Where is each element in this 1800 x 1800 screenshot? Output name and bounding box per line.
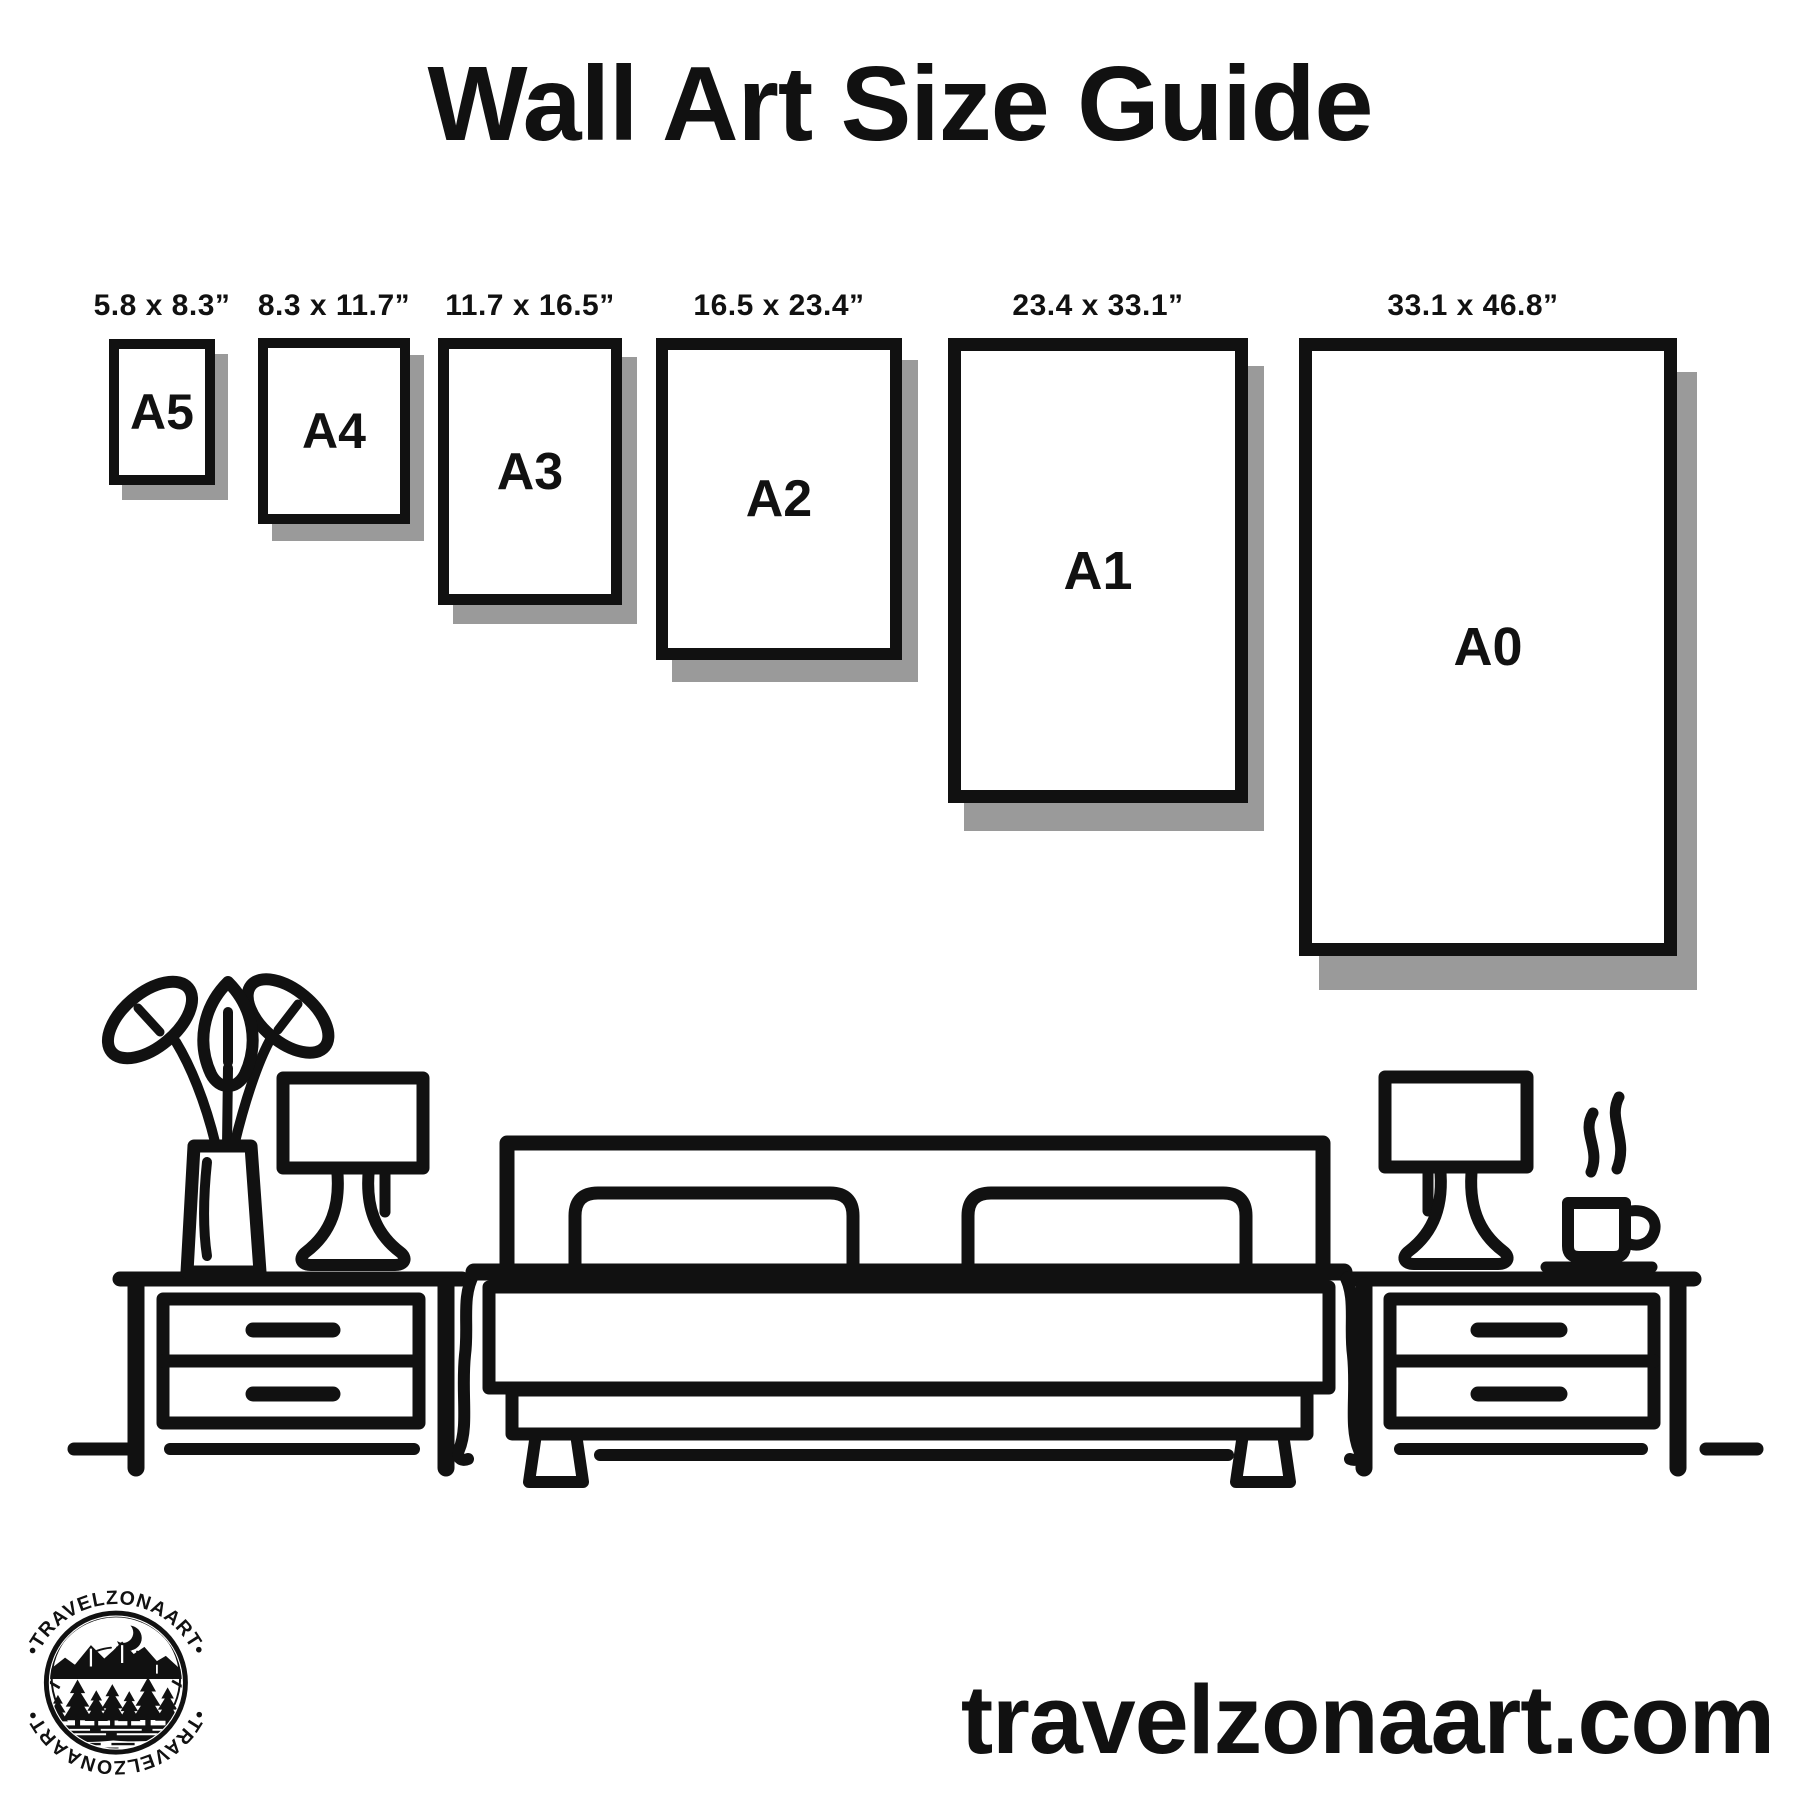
mountains-icon: [44, 1642, 187, 1688]
paper-a1: A1: [948, 338, 1248, 803]
wall-art-size-guide-page: Wall Art Size Guide 5.8 x 8.3” 8.3 x 11.…: [0, 0, 1800, 1800]
pine-trees-icon: [48, 1677, 180, 1727]
coffee-mug-steam-icon: [1546, 1097, 1655, 1267]
paper-name-a1: A1: [1063, 544, 1132, 598]
size-label-a0: 33.1 x 46.8”: [1263, 288, 1683, 324]
size-label-a1: 23.4 x 33.1”: [888, 288, 1308, 324]
paper-name-a3: A3: [497, 446, 563, 498]
brand-logo: •TRAVELZONAART• •TRAVELZONAART•: [8, 1572, 222, 1786]
bedroom-illustration: [0, 950, 1800, 1510]
nightstand-right-icon: [1348, 1279, 1694, 1468]
logo-arc-text-top-path: •TRAVELZONAART•: [22, 1587, 211, 1659]
crescent-moon-icon: [113, 1622, 142, 1650]
paper-name-a4: A4: [302, 406, 366, 456]
paper-a4: A4: [258, 338, 410, 524]
paper-name-a5: A5: [130, 387, 194, 437]
paper-name-a0: A0: [1453, 620, 1522, 674]
nightstand-left-icon: [120, 1279, 462, 1468]
paper-a3: A3: [438, 338, 622, 605]
paper-a5: A5: [109, 339, 215, 485]
double-bed-icon: [458, 1143, 1360, 1482]
paper-name-a2: A2: [746, 473, 812, 525]
paper-a0: A0: [1299, 338, 1677, 956]
table-lamp-right-icon: [1385, 1077, 1527, 1264]
paper-a2: A2: [656, 338, 902, 660]
potted-plant-icon: [94, 965, 341, 1272]
table-lamp-left-icon: [283, 1078, 423, 1265]
logo-arc-text-top: •TRAVELZONAART•: [22, 1587, 211, 1659]
website-url: travelzonaart.com: [961, 1664, 1774, 1776]
page-title: Wall Art Size Guide: [0, 44, 1800, 165]
